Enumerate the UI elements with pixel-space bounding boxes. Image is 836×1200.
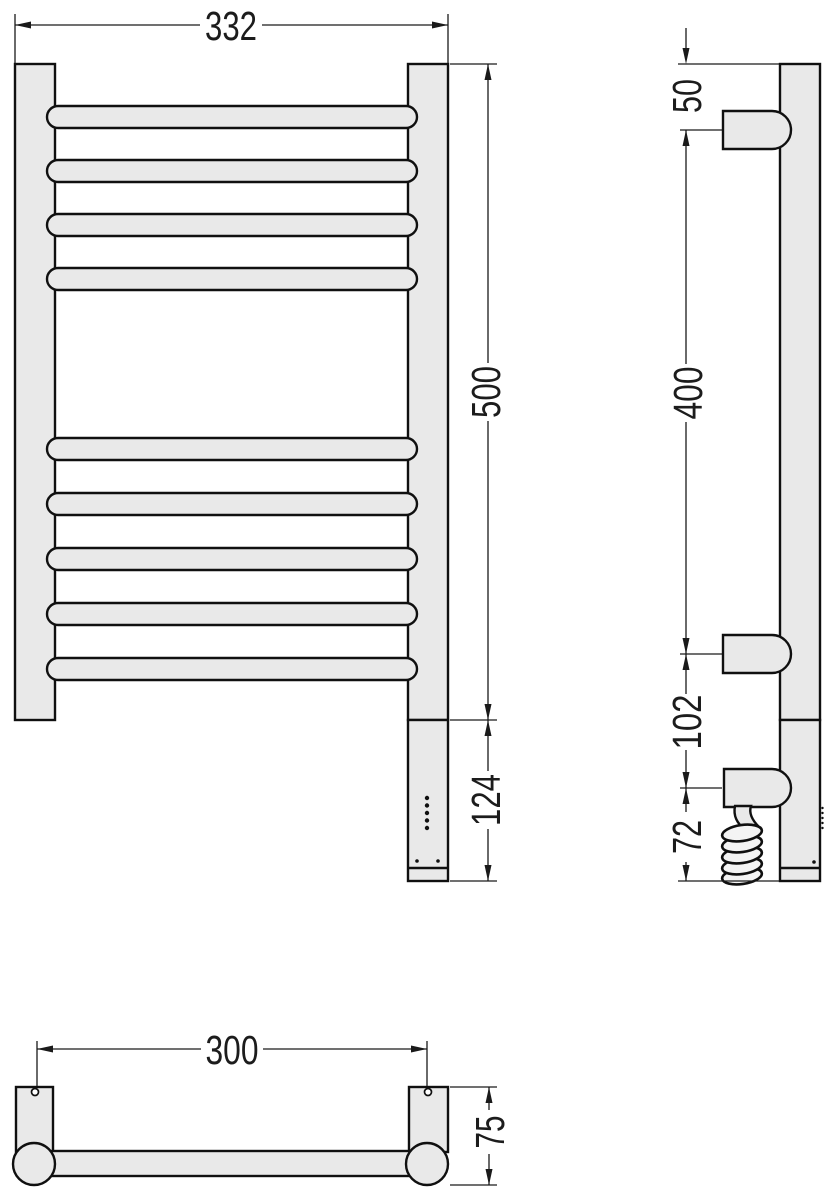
dim-bracket-spacing: 300 [37, 1027, 427, 1086]
power-cable-coil [721, 822, 763, 886]
rung [47, 214, 417, 236]
arrowhead [486, 1169, 493, 1185]
dim-label-top-offset: 50 [664, 79, 710, 113]
wall-bracket-lower [723, 635, 791, 673]
post-section-left [13, 1143, 55, 1185]
dim-label-overall-width: 332 [205, 3, 257, 49]
technical-drawing: 332 500 124 [0, 0, 836, 1200]
dim-bracket-to-cable-entry: 102 [664, 654, 722, 788]
led-edge-tick [821, 827, 823, 829]
led-edge-tick [821, 822, 823, 824]
led-dot [425, 811, 429, 815]
led-edge-tick [821, 812, 823, 814]
bottom-view [13, 1087, 448, 1185]
dim-rail-height: 500 [450, 64, 509, 720]
dim-label-rail-height: 500 [463, 366, 509, 418]
led-dot [425, 826, 429, 830]
rung [47, 548, 417, 570]
led-dot [425, 796, 429, 800]
mounting-hole-left [32, 1089, 39, 1096]
arrowhead [683, 48, 690, 64]
front-view [15, 64, 448, 881]
arrowhead [15, 22, 31, 29]
arrowhead [485, 704, 492, 720]
post-section-right [406, 1143, 448, 1185]
dim-bracket-span: 400 [665, 130, 722, 654]
dim-label-bracket-span: 400 [665, 367, 711, 420]
arrowhead [485, 720, 492, 736]
dim-label-depth: 75 [467, 1116, 513, 1149]
arrowhead [683, 654, 690, 670]
post-side-profile [780, 64, 820, 720]
cable-entry-housing [724, 769, 791, 807]
arrowhead [486, 1087, 493, 1103]
housing-screw-dot [415, 859, 419, 863]
led-dot [425, 818, 429, 822]
dim-depth: 75 [450, 1087, 513, 1185]
housing-screw-dot [812, 860, 816, 864]
rung [47, 603, 417, 625]
housing-screw-dot [436, 859, 440, 863]
mounting-hole-right [425, 1089, 432, 1096]
arrowhead [37, 1046, 53, 1053]
rung [47, 438, 417, 460]
rung [47, 160, 417, 182]
drawing-canvas: 332 500 124 [0, 0, 836, 1200]
arrowhead [485, 64, 492, 80]
arrowhead [683, 772, 690, 788]
wall-bracket-upper [723, 111, 791, 149]
arrowhead [411, 1046, 427, 1053]
rung [47, 106, 417, 128]
arrowhead [683, 788, 690, 804]
led-dot [425, 803, 429, 807]
dim-overall-width: 332 [15, 3, 448, 63]
arrowhead [485, 865, 492, 881]
heater-housing [408, 720, 448, 881]
rung [47, 493, 417, 515]
bottom-rung-plan [34, 1151, 427, 1176]
arrowhead [683, 638, 690, 654]
dim-heater-section: 124 [450, 720, 509, 881]
rung [47, 658, 417, 680]
rung [47, 268, 417, 290]
dim-label-bottom-offset: 72 [664, 820, 710, 854]
dim-label-heater-section: 124 [463, 774, 509, 826]
dim-label-bracket-spacing: 300 [206, 1027, 259, 1073]
side-view [723, 64, 820, 881]
arrowhead [432, 22, 448, 29]
dim-label-cable-entry-offset: 102 [664, 695, 710, 750]
arrowhead [683, 865, 690, 881]
led-edge-tick [821, 817, 823, 819]
led-edge-tick [821, 807, 823, 809]
